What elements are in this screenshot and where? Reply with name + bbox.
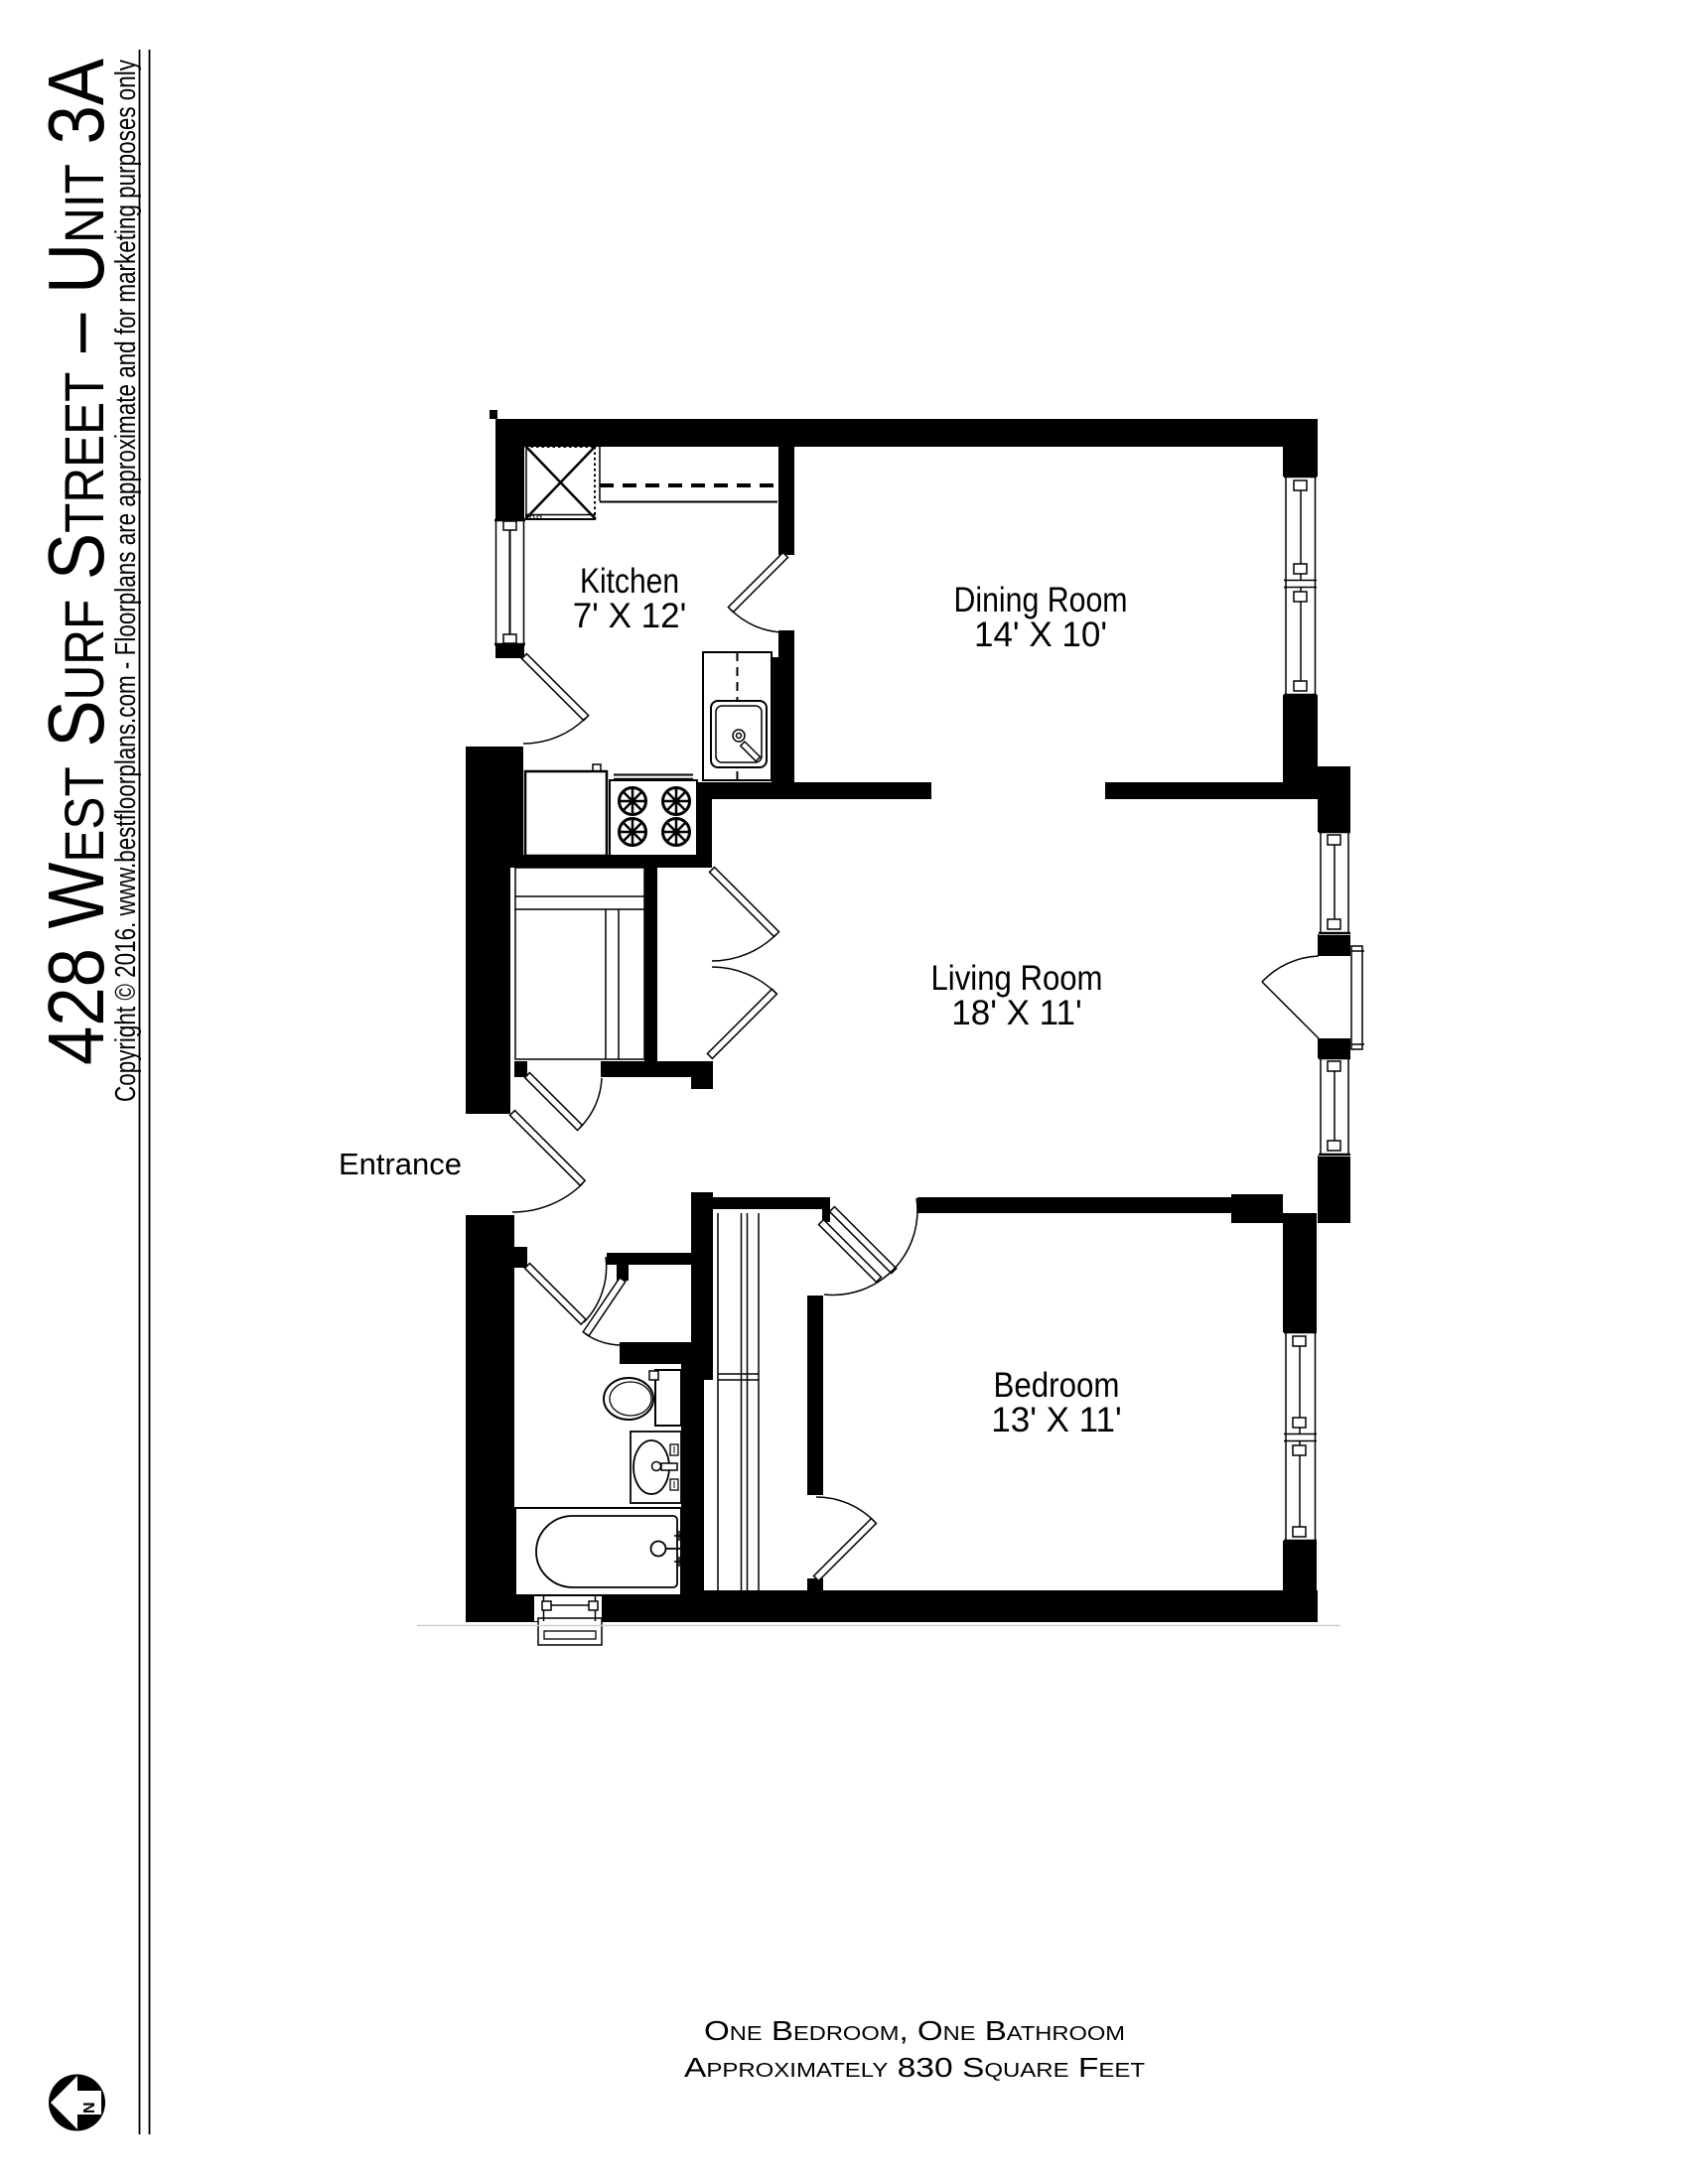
svg-text:Living Room: Living Room [931, 959, 1103, 998]
svg-text:Dining Room: Dining Room [954, 581, 1128, 619]
svg-text:Copyright © 2016. www.bestfloo: Copyright © 2016. www.bestfloorplans.com… [110, 60, 142, 1102]
svg-text:7' X 12': 7' X 12' [573, 597, 687, 635]
svg-text:18' X 11': 18' X 11' [951, 994, 1081, 1032]
svg-text:N: N [81, 2102, 98, 2114]
svg-text:14' X 10': 14' X 10' [974, 615, 1107, 654]
svg-text:Approximately 830 Square Feet: Approximately 830 Square Feet [684, 2052, 1145, 2083]
svg-text:428 West Surf Street – Unit 3A: 428 West Surf Street – Unit 3A [32, 58, 120, 1065]
svg-text:Entrance: Entrance [339, 1147, 462, 1181]
svg-text:One Bedroom, One Bathroom: One Bedroom, One Bathroom [704, 2015, 1125, 2046]
svg-text:Kitchen: Kitchen [580, 562, 679, 601]
svg-text:Bedroom: Bedroom [994, 1366, 1120, 1405]
svg-text:13' X 11': 13' X 11' [991, 1401, 1121, 1439]
